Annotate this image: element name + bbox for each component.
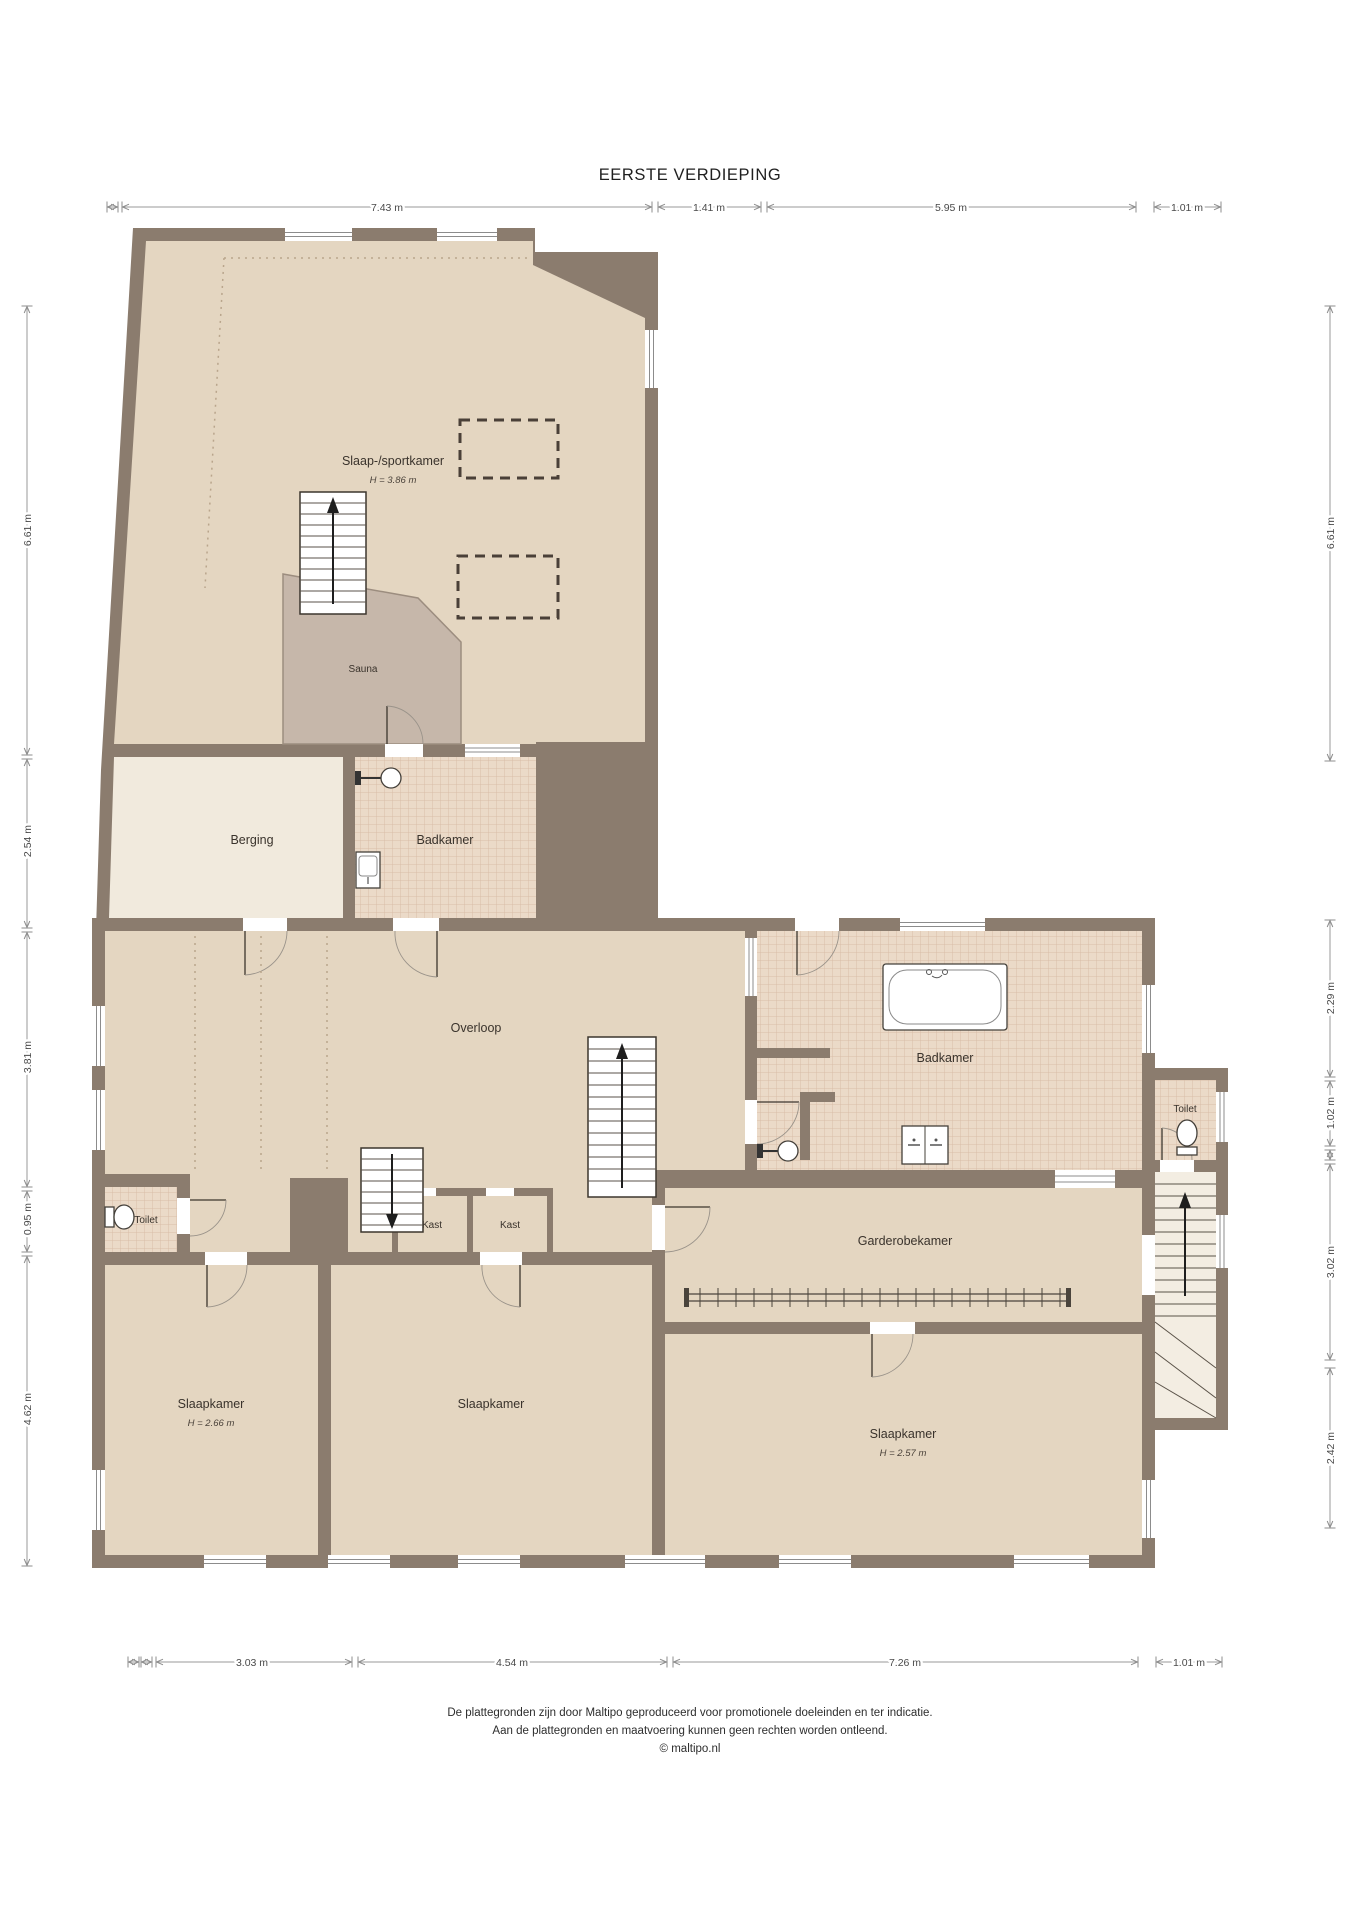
- toilet-icon: [105, 1205, 134, 1229]
- dim-left-2: 2.54 m: [22, 825, 34, 857]
- dimension-lines-right: 6.61 m 2.29 m 1.02 m 3.02 m 2.42 m: [1325, 306, 1337, 1528]
- footer-line-3: © maltipo.nl: [660, 1743, 721, 1755]
- dim-left-1: 6.61 m: [22, 514, 34, 546]
- label-kast-rechts: Kast: [500, 1220, 520, 1231]
- dim-bottom-4: 1.01 m: [1173, 1657, 1205, 1669]
- label-badkamer: Badkamer: [917, 1051, 974, 1065]
- label-slaapkamer-rechts: Slaapkamer: [870, 1427, 937, 1441]
- window-icon: [285, 228, 352, 241]
- window-icon: [204, 1555, 266, 1568]
- dim-left-5: 4.62 m: [22, 1393, 34, 1425]
- dim-top-1: 7.43 m: [371, 202, 403, 214]
- label-toilet-rechts: Toilet: [1173, 1104, 1197, 1115]
- label-slaapkamer-midden: Slaapkamer: [458, 1397, 525, 1411]
- label-berging: Berging: [230, 833, 273, 847]
- room-slaapkamer-rechts: [665, 1334, 1142, 1555]
- page-title: EERSTE VERDIEPING: [599, 166, 782, 184]
- label-toilet-links: Toilet: [134, 1215, 158, 1226]
- footer: De plattegronden zijn door Maltipo gepro…: [447, 1707, 932, 1755]
- label-garderobekamer: Garderobekamer: [858, 1234, 953, 1248]
- dim-right-1: 6.61 m: [1325, 517, 1337, 549]
- dimension-lines-bottom: 3.03 m 4.54 m 7.26 m 1.01 m: [128, 1657, 1222, 1669]
- stairs-down: [361, 1148, 423, 1232]
- window-icon: [1216, 1092, 1228, 1142]
- room-berging: [109, 757, 343, 918]
- window-icon: [1014, 1555, 1089, 1568]
- label-slaapkamer-links: Slaapkamer: [178, 1397, 245, 1411]
- label-sauna: Sauna: [349, 664, 378, 675]
- window-icon: [92, 1006, 105, 1066]
- dim-bottom-2: 4.54 m: [496, 1657, 528, 1669]
- bathtub-icon: [883, 964, 1007, 1030]
- label-badkamer-boven: Badkamer: [417, 833, 474, 847]
- double-sink-icon: [902, 1126, 948, 1164]
- label-slaap-sportkamer-height: H = 3.86 m: [370, 475, 417, 486]
- dim-right-5: 2.42 m: [1325, 1432, 1337, 1464]
- dim-right-4: 3.02 m: [1325, 1246, 1337, 1278]
- footer-line-2: Aan de plattegronden en maatvoering kunn…: [492, 1725, 887, 1737]
- window-icon: [92, 1090, 105, 1150]
- dim-right-3: 1.02 m: [1325, 1097, 1337, 1129]
- window-icon: [900, 918, 985, 931]
- dim-bottom-1: 3.03 m: [236, 1657, 268, 1669]
- stairs-main-up: [588, 1037, 656, 1197]
- dim-left-4: 0.95 m: [22, 1203, 34, 1235]
- label-slaap-sportkamer: Slaap-/sportkamer: [342, 454, 444, 468]
- window-icon: [779, 1555, 851, 1568]
- glass-partition-icon: [745, 938, 757, 996]
- dim-left-3: 3.81 m: [22, 1041, 34, 1073]
- dimension-lines-top: 7.43 m 1.41 m 5.95 m 1.01 m: [107, 202, 1221, 214]
- window-icon: [645, 330, 658, 388]
- window-icon: [465, 744, 520, 757]
- floorplan-page: EERSTE VERDIEPING: [0, 0, 1358, 1920]
- dim-top-2: 1.41 m: [693, 202, 725, 214]
- footer-line-1: De plattegronden zijn door Maltipo gepro…: [447, 1707, 932, 1719]
- window-icon: [1216, 1215, 1228, 1268]
- glass-partition-icon: [1055, 1170, 1115, 1188]
- window-icon: [92, 1470, 105, 1530]
- sink-icon: [356, 852, 380, 888]
- window-icon: [625, 1555, 705, 1568]
- dim-top-3: 5.95 m: [935, 202, 967, 214]
- dim-bottom-3: 7.26 m: [889, 1657, 921, 1669]
- window-icon: [1142, 985, 1155, 1053]
- door-opening: [486, 1188, 514, 1196]
- stairs-attic: [300, 492, 366, 614]
- window-icon: [328, 1555, 390, 1568]
- label-slaapkamer-links-height: H = 2.66 m: [188, 1418, 235, 1429]
- label-overloop: Overloop: [451, 1021, 502, 1035]
- door-opening: [1142, 1235, 1155, 1295]
- toilet-icon: [1177, 1120, 1197, 1155]
- dim-right-2: 2.29 m: [1325, 982, 1337, 1014]
- window-icon: [1142, 1480, 1155, 1538]
- label-slaapkamer-rechts-height: H = 2.57 m: [880, 1448, 927, 1459]
- dimension-lines-left: 6.61 m 2.54 m 3.81 m 0.95 m 4.62 m: [22, 306, 34, 1566]
- window-icon: [437, 228, 497, 241]
- window-icon: [458, 1555, 520, 1568]
- floorplan-canvas: EERSTE VERDIEPING: [0, 0, 1358, 1920]
- dim-top-4: 1.01 m: [1171, 202, 1203, 214]
- label-kast-links: Kast: [422, 1220, 442, 1231]
